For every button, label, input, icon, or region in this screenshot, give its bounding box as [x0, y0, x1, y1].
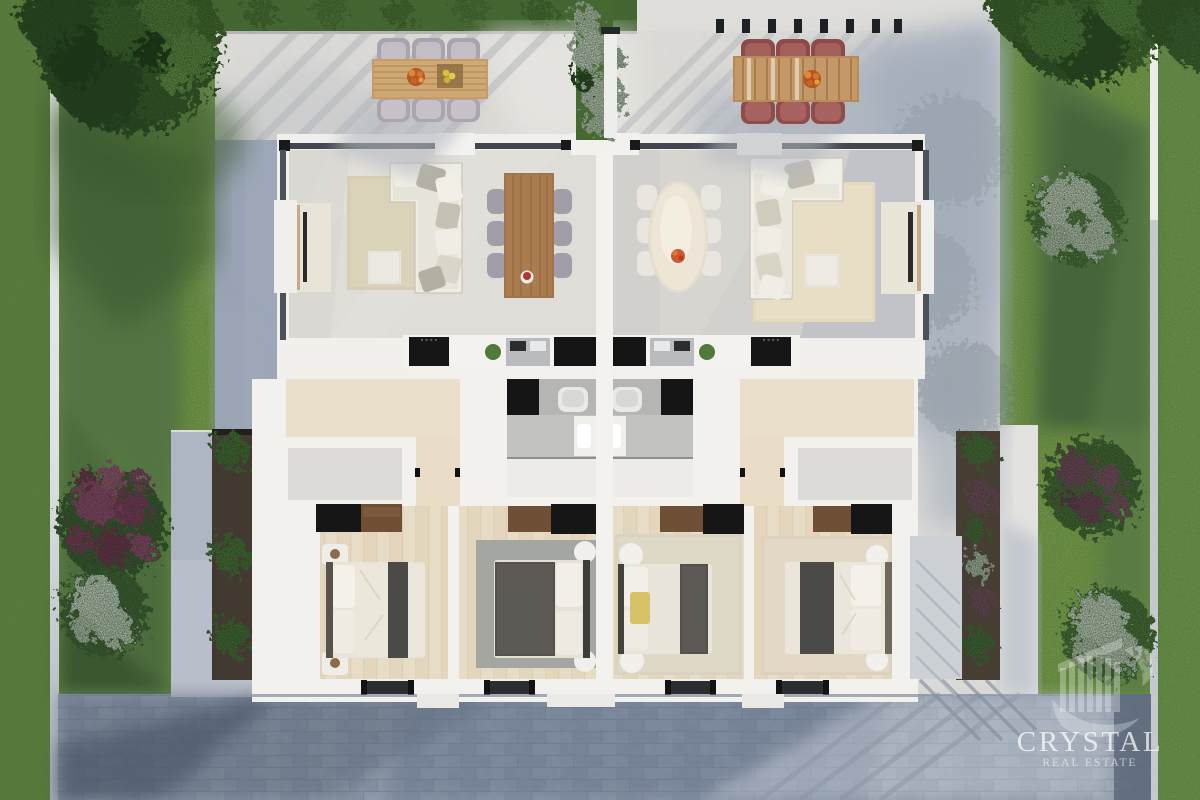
svg-text:CRYSTAL: CRYSTAL	[1017, 726, 1163, 758]
svg-text:REAL ESTATE: REAL ESTATE	[1042, 757, 1137, 769]
